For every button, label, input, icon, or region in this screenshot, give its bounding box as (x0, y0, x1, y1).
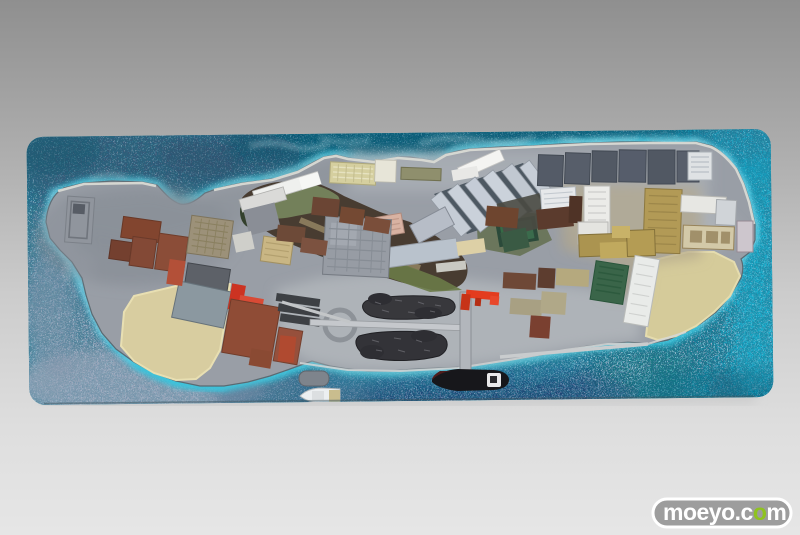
svg-text:moeyo.com: moeyo.com (663, 499, 786, 525)
